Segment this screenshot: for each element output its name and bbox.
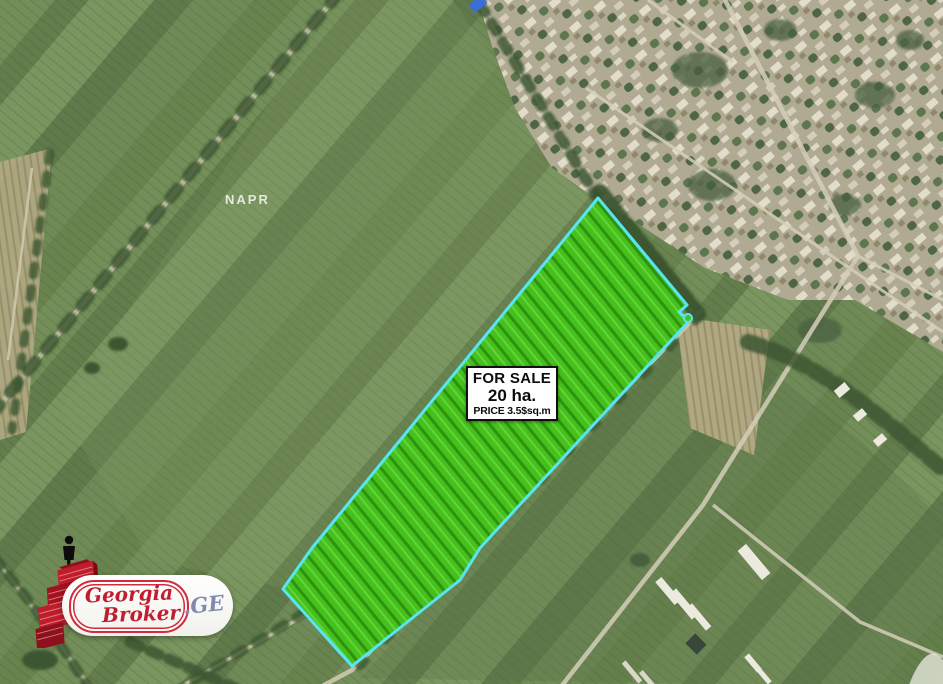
sale-area: 20 ha.: [469, 387, 555, 405]
georgia-broker-logo: Georgia Broker .GE: [30, 528, 242, 644]
sale-price: PRICE 3.5$sq.m: [469, 405, 555, 417]
for-sale-label: FOR SALE 20 ha. PRICE 3.5$sq.m: [466, 366, 558, 421]
logo-capsule: Georgia Broker .GE: [62, 575, 233, 636]
sale-title: FOR SALE: [469, 371, 555, 387]
satellite-map: NAPR FOR SALE 20 ha. PRICE 3.5$sq.m: [0, 0, 943, 684]
logo-ring: Georgia Broker: [69, 580, 189, 633]
domain-suffix: .GE: [182, 590, 226, 619]
napr-watermark: NAPR: [225, 192, 270, 207]
brand-name-line2: Broker: [71, 602, 200, 627]
